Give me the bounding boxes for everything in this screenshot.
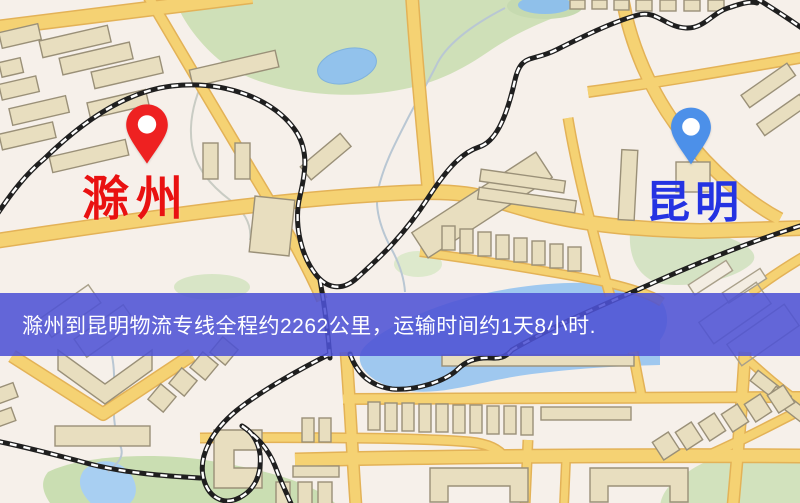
map-canvas[interactable]: 滁州 昆明 滁州到昆明物流专线全程约2262公里，运输时间约1天8小时. xyxy=(0,0,800,503)
location-pin-icon[interactable] xyxy=(123,97,171,171)
pin-shape xyxy=(126,104,168,163)
route-info-banner: 滁州到昆明物流专线全程约2262公里，运输时间约1天8小时. xyxy=(0,293,800,356)
destination-label: 昆明 xyxy=(646,181,744,225)
origin-label: 滁州 xyxy=(82,175,190,222)
map-background xyxy=(0,0,800,503)
route-info-text: 滁州到昆明物流专线全程约2262公里，运输时间约1天8小时. xyxy=(22,310,596,340)
pin-shape xyxy=(671,108,711,165)
pin-hole xyxy=(682,118,700,136)
pin-hole xyxy=(138,115,156,133)
location-pin-icon[interactable] xyxy=(668,103,714,169)
